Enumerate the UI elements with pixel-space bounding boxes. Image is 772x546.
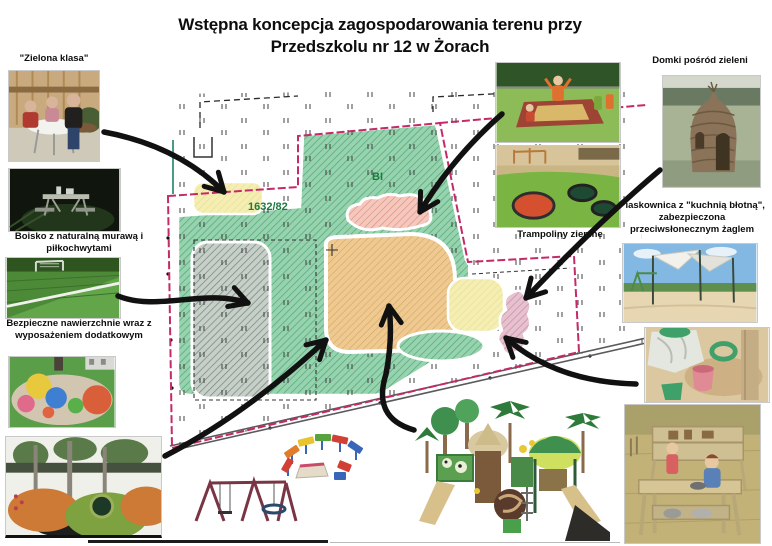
photo-trampolina-kwadratowa	[495, 62, 621, 143]
image-laweczki	[272, 432, 374, 482]
image-hustawki	[190, 475, 302, 523]
photo-boisko	[5, 257, 121, 319]
zone-label: BI	[372, 171, 383, 183]
photo-zielona-klasa	[8, 70, 100, 162]
caption-trampoliny: Trampoliny ziemne	[500, 229, 620, 241]
caption-nawierzchnie: Bezpieczne nawierzchnie wraz z wyposażen…	[0, 318, 158, 342]
photo-pagorki	[5, 436, 162, 538]
scan-edge-line	[88, 540, 328, 543]
image-plac-zabaw	[415, 393, 610, 543]
page-title-line1: Wstępna koncepcja zagospodarowania teren…	[140, 14, 620, 36]
zone-yellow-right	[448, 278, 504, 332]
photo-trampoliny-okragle	[495, 145, 621, 228]
caption-zielona-klasa: "Zielona klasa"	[8, 53, 100, 65]
concept-board: Wstępna koncepcja zagospodarowania teren…	[0, 0, 772, 546]
caption-piaskownica: Piaskownica z "kuchnią błotną", zabezpie…	[614, 200, 770, 236]
photo-kuchnia-blotna	[624, 404, 761, 544]
zone-green-oval	[398, 331, 484, 361]
parcel-number-label: 1632/82	[248, 201, 288, 213]
photo-zabawki-piasek	[644, 327, 770, 403]
caption-boisko: Boisko z naturalną murawą i piłkochwytam…	[0, 231, 158, 255]
page-title-line2: Przedszkolu nr 12 w Żorach	[140, 36, 620, 58]
photo-piaskownica-zagiel	[622, 243, 758, 323]
scan-edge-line-2	[330, 542, 620, 543]
caption-domki: Domki pośród zieleni	[634, 55, 766, 67]
photo-picnic-table	[8, 168, 121, 232]
photo-domki-wiklinowe	[662, 75, 761, 188]
page-title: Wstępna koncepcja zagospodarowania teren…	[140, 14, 620, 58]
photo-kolorowe-kule	[8, 356, 116, 428]
